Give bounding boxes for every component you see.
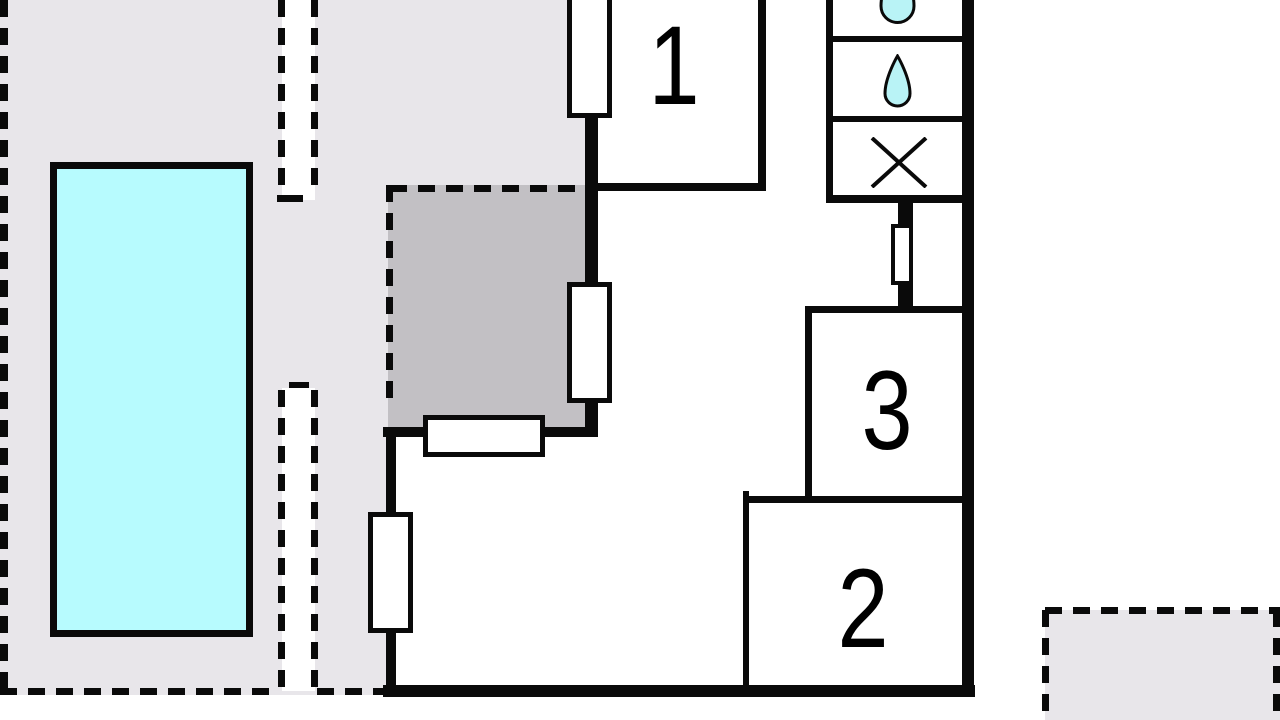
patio-left-dashed-edge: [386, 185, 393, 398]
bathroom-divider-1: [833, 36, 962, 42]
room1-right-wall: [758, 0, 766, 190]
window-living-west: [567, 282, 612, 403]
terrace-br-left-dashed-edge: [1042, 610, 1049, 720]
terrace-br-right-dashed-edge: [1273, 610, 1280, 720]
patio-dark: [388, 185, 592, 432]
patio-top-dashed-edge: [390, 185, 587, 192]
terrace-bottom-right: [1045, 610, 1280, 720]
terrace-bottom-dashed-edge-2: [317, 688, 383, 695]
swimming-pool: [50, 162, 253, 637]
terrace-top: [390, 0, 585, 185]
walkway-bottom-end-dash: [289, 382, 309, 388]
walkway-top-end-dash: [277, 195, 303, 202]
room-3-label: 3: [805, 311, 969, 511]
terrace-bottom-dashed-edge-1: [0, 688, 278, 695]
water-drop-icon: [882, 54, 913, 108]
room1-bottom-wall: [585, 183, 766, 191]
walkway-bottom-right-dashed-edge: [311, 390, 318, 690]
water-drop-partial-icon: [877, 0, 918, 24]
room-2-label: 2: [781, 509, 945, 709]
bathroom-door: [891, 224, 913, 285]
bathroom-left-wall: [826, 0, 833, 203]
floor-plan: 1 3 2: [0, 0, 1280, 720]
bathroom-divider-2: [833, 116, 962, 122]
terrace-br-top-dashed-edge: [1045, 607, 1280, 614]
walkway-top-left-dashed-edge: [278, 0, 285, 196]
door-stem-lower: [898, 283, 913, 307]
terrace-left-dashed-edge: [0, 0, 8, 695]
walkway-bottom-left-dashed-edge: [278, 390, 285, 690]
walkway-top-right-dashed-edge: [311, 0, 318, 196]
window-living-north: [423, 415, 545, 457]
room-1-label: 1: [592, 0, 756, 166]
door-stem-upper: [898, 203, 913, 225]
bathroom-bottom-wall: [826, 195, 962, 203]
room2-left-wall: [743, 491, 749, 687]
window-living-southwest: [368, 512, 413, 633]
cross-x-icon: [870, 137, 928, 188]
